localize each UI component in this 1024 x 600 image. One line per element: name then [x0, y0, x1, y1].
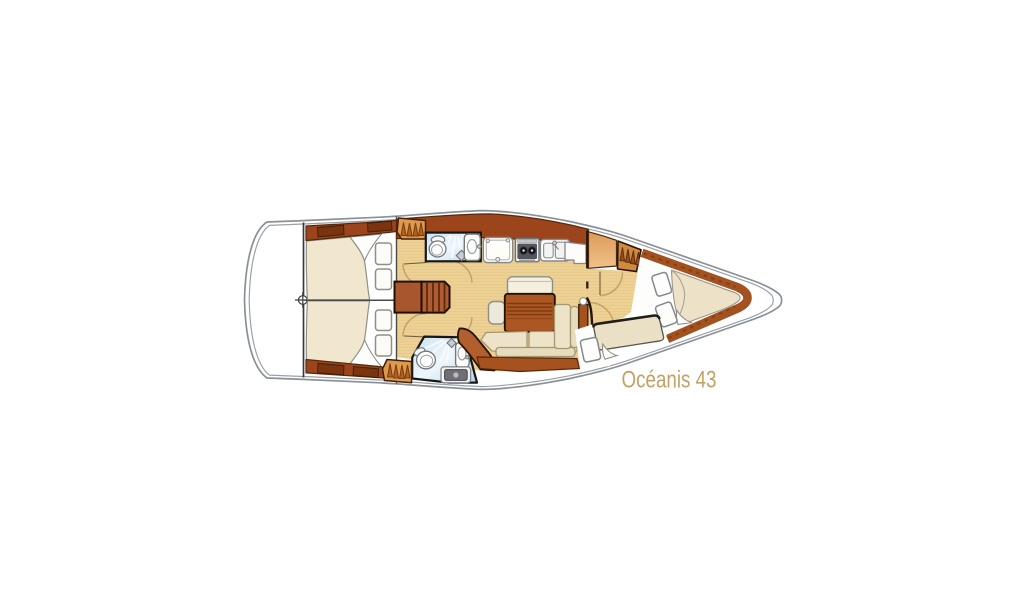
svg-text:Océanis 43: Océanis 43	[622, 367, 717, 394]
